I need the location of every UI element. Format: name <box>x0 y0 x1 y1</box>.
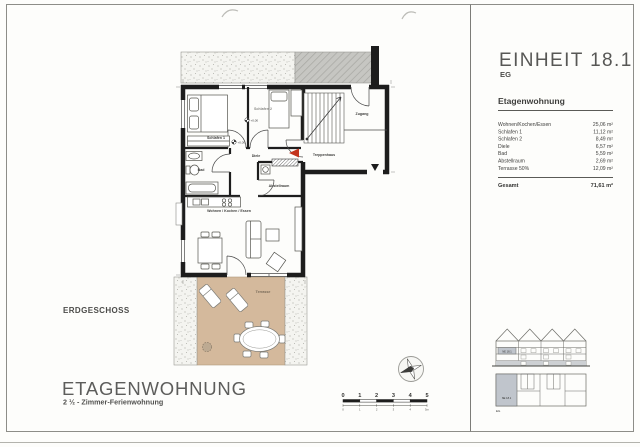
area-row-value: 2,69 m² <box>596 159 614 165</box>
room-label-abstellraum: Abstellraum <box>269 184 290 188</box>
dining-table <box>198 232 222 269</box>
scale-bar: 0 1 2 3 4 5 0 1 2 3 4 5m <box>341 393 429 412</box>
shaft-hatch <box>272 159 298 166</box>
washing-machine <box>261 165 270 174</box>
page-subtitle: 2 ½ - Zimmer-Ferienwohnung <box>63 398 163 407</box>
exterior-box <box>176 203 182 225</box>
area-row-value: 12,09 m² <box>593 166 613 172</box>
area-row-label: Wohnen/Kochen/Essen <box>498 122 551 128</box>
scale-tick: 3 <box>392 393 395 399</box>
coffee-table <box>266 229 279 241</box>
staircase <box>304 93 344 143</box>
entrance-arrow <box>289 149 299 158</box>
scale-sub-line <box>343 404 427 406</box>
area-row-label: Terrasse 50% <box>498 166 530 172</box>
level-marker-text: +0,00 <box>238 141 246 145</box>
area-row-label: Abstellraum <box>498 159 525 165</box>
scale-tick: 1 <box>358 393 361 399</box>
section-heading: Etagenwohnung <box>498 96 565 106</box>
unit-floor: EG <box>500 70 511 79</box>
unit-title: EINHEIT 18.1 <box>499 50 633 71</box>
bed-single <box>269 90 289 128</box>
bed-double <box>188 95 228 132</box>
closet <box>291 90 302 116</box>
scale-sub-tick: 5m <box>425 408 430 412</box>
terrace-shrub <box>202 342 211 351</box>
door-swings <box>212 87 369 275</box>
room-label-diele: Diele <box>252 154 261 158</box>
siteplan-highlight-label: NE 18.1 <box>502 396 512 400</box>
info-panel: EINHEIT 18.1 EG Etagenwohnung Wohnen/Koc… <box>498 50 633 189</box>
room-label-schlafen1: Schlafen 1 <box>207 136 225 140</box>
room-label-terrasse: Terrasse <box>256 290 271 294</box>
room-label-wohnen: Wohnen / Kochen / Essen <box>207 209 251 213</box>
siteplan-floor-label: EG <box>496 409 501 413</box>
scan-curl-right <box>402 12 416 19</box>
area-row-value: 25,06 m² <box>593 122 613 128</box>
sheet-graphics: +0,00 +0,00 Schlafen 1 Schlafen 2 Zugang… <box>0 0 640 447</box>
floorplan-sheet: +0,00 +0,00 Schlafen 1 Schlafen 2 Zugang… <box>0 0 640 447</box>
bathroom-fixtures <box>186 152 218 195</box>
room-label-bad: Bad <box>198 168 205 172</box>
scale-tick: 4 <box>409 393 413 399</box>
scale-sub-tick: 1 <box>359 408 361 412</box>
scale-sub-ticks: 0 1 2 3 4 5m <box>342 408 429 412</box>
area-row-label: Schlafen 1 <box>498 129 522 135</box>
sideboard <box>295 207 302 251</box>
area-table: Wohnen/Kochen/Essen 25,06 m² Schlafen 1 … <box>498 122 613 172</box>
total-value: 71,61 m² <box>591 182 614 189</box>
area-row-value: 5,59 m² <box>596 151 614 157</box>
scale-sub-tick: 4 <box>409 408 411 412</box>
sofa <box>246 221 261 258</box>
total-label: Gesamt <box>498 183 519 189</box>
scale-tick: 5 <box>425 393 428 399</box>
area-row-label: Schlafen 2 <box>498 137 522 143</box>
scale-ticks: 0 1 2 3 4 5 <box>341 393 428 399</box>
scale-tick: 2 <box>375 393 378 399</box>
room-label-schlafen2: Schlafen 2 <box>254 107 272 111</box>
room-label-treppenhaus: Treppenhaus <box>313 153 335 157</box>
area-row-value: 8,49 m² <box>596 137 614 143</box>
scale-sub-tick: 2 <box>376 408 378 412</box>
scan-curl-left <box>222 10 238 17</box>
hatched-band <box>295 52 372 83</box>
area-row-value: 11,12 m² <box>593 129 613 135</box>
siteplan-highlight <box>496 374 517 406</box>
locator-siteplan: NE 18.1 EG <box>496 374 586 413</box>
area-row-label: Bad <box>498 151 507 157</box>
armchair <box>266 252 285 271</box>
level-marker: +0,00 <box>232 140 246 145</box>
area-row-label: Diele <box>498 144 510 150</box>
floor-label: ERDGESCHOSS <box>63 306 130 315</box>
elevation-highlight-label: NE 18.1 <box>502 349 512 353</box>
level-marker-text: +0,00 <box>251 119 259 123</box>
scale-bar-segments <box>343 400 427 403</box>
gravel-strip-left <box>174 277 197 365</box>
scale-tick: 0 <box>341 393 344 399</box>
wall-stub <box>371 46 379 87</box>
scale-sub-tick: 3 <box>393 408 395 412</box>
room-label-zugang: Zugang <box>356 112 369 116</box>
building-entry-arrow <box>371 164 379 171</box>
level-marker: +0,00 <box>245 118 259 123</box>
scale-sub-tick: 0 <box>342 408 344 412</box>
kitchen-counter <box>188 197 241 207</box>
page-title: ETAGENWOHNUNG <box>62 378 247 399</box>
floor-plan: +0,00 +0,00 Schlafen 1 Schlafen 2 Zugang… <box>174 46 395 365</box>
locator-elevation: NE 18.1 <box>492 329 590 366</box>
north-compass-icon <box>397 355 425 383</box>
gravel-strip-right <box>285 277 307 365</box>
gravel-band <box>181 52 295 83</box>
area-row-value: 6,57 m² <box>596 144 614 150</box>
